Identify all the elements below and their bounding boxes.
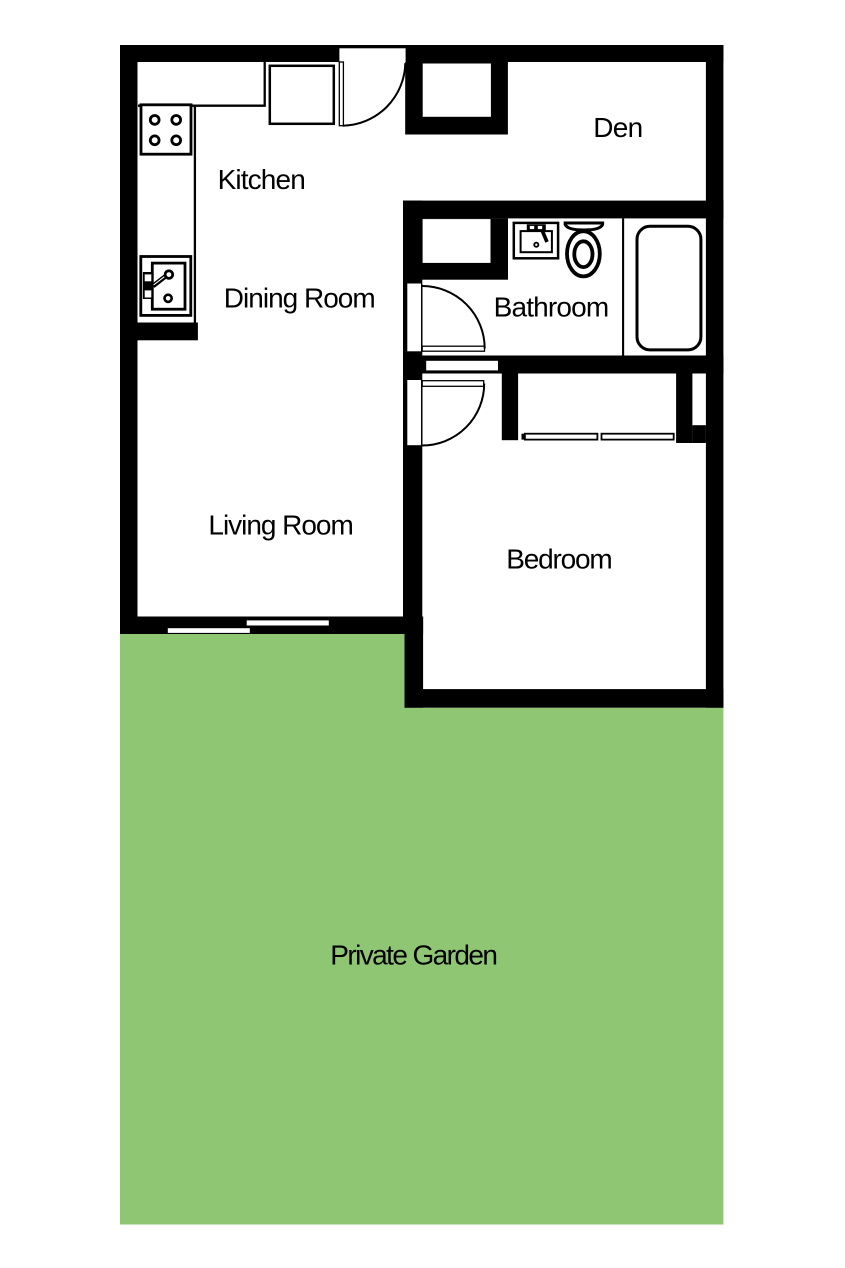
svg-text:Dining Room: Dining Room: [224, 282, 376, 313]
svg-text:Den: Den: [593, 112, 643, 143]
svg-text:Private Garden: Private Garden: [330, 940, 498, 971]
svg-text:Living Room: Living Room: [208, 510, 353, 541]
svg-text:Bathroom: Bathroom: [494, 292, 610, 323]
svg-text:Kitchen: Kitchen: [218, 164, 306, 195]
svg-text:Bedroom: Bedroom: [506, 544, 613, 575]
